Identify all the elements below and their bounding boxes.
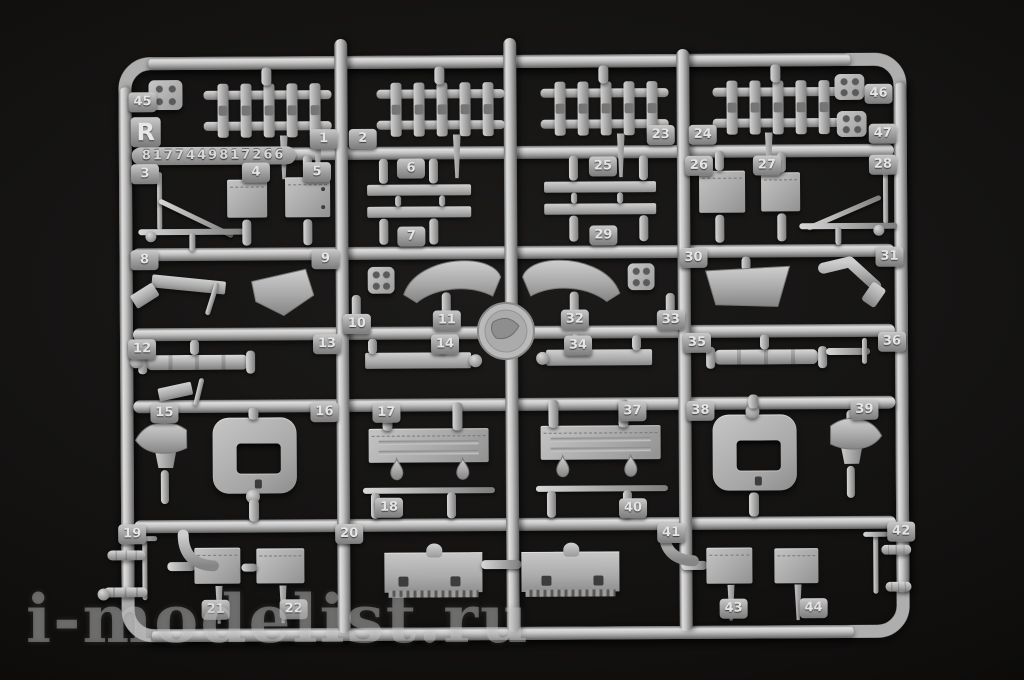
part-number-tag-36: 36 [878, 332, 906, 352]
part-number-tag-42: 42 [887, 522, 915, 542]
part-number-tag-26: 26 [685, 156, 713, 176]
part-number-tag-43: 43 [720, 599, 748, 619]
part-number-tag-35: 35 [683, 333, 711, 353]
part-number-tag-37: 37 [618, 401, 646, 421]
part-number-tag-1: 1 [310, 129, 338, 149]
part-number-tag-38: 38 [686, 401, 714, 421]
sprue-runner: R 8177449817266 454647122324345625262728… [0, 0, 1024, 680]
part-number-tag-40: 40 [619, 498, 647, 518]
part-number-tag-4: 4 [242, 162, 270, 182]
part-number-tag-14: 14 [431, 334, 459, 354]
part-number-tag-27: 27 [753, 155, 781, 175]
part-number-tag-2: 2 [349, 129, 377, 149]
part-number-tag-11: 11 [433, 310, 461, 330]
part-number-tag-8: 8 [130, 250, 158, 270]
photo-background: R 8177449817266 454647122324345625262728… [0, 0, 1024, 680]
part-number-tag-3: 3 [131, 164, 159, 184]
part-number-tag-5: 5 [303, 162, 331, 182]
watermark-text: i-modelist.ru [26, 580, 666, 658]
part-number-tag-33: 33 [657, 310, 685, 330]
part-number-tag-41: 41 [657, 523, 685, 543]
part-number-tag-45: 45 [128, 92, 156, 112]
part-number-tag-10: 10 [343, 314, 371, 334]
part-number-tag-15: 15 [150, 403, 178, 423]
part-number-tag-19: 19 [118, 524, 146, 544]
part-number-tag-29: 29 [589, 225, 617, 245]
part-number-tag-30: 30 [679, 248, 707, 268]
part-number-tag-12: 12 [128, 339, 156, 359]
part-number-tag-9: 9 [311, 249, 339, 269]
part-number-tag-28: 28 [869, 155, 897, 175]
part-number-tag-17: 17 [372, 403, 400, 423]
part-number-tag-7: 7 [397, 227, 425, 247]
part-number-tag-32: 32 [561, 310, 589, 330]
part-number-tag-34: 34 [564, 336, 592, 356]
part-number-tag-44: 44 [800, 598, 828, 618]
part-number-tag-16: 16 [310, 402, 338, 422]
part-number-tag-20: 20 [335, 524, 363, 544]
part-number-tags: 4546471223243456252627287298930311011323… [0, 0, 1024, 680]
part-number-tag-25: 25 [589, 156, 617, 176]
part-number-tag-18: 18 [375, 498, 403, 518]
part-number-tag-46: 46 [864, 84, 892, 104]
part-number-tag-23: 23 [647, 125, 675, 145]
part-number-tag-6: 6 [397, 159, 425, 179]
part-number-tag-31: 31 [875, 247, 903, 267]
part-number-tag-39: 39 [850, 400, 878, 420]
part-number-tag-24: 24 [689, 125, 717, 145]
part-number-tag-47: 47 [869, 124, 897, 144]
part-number-tag-13: 13 [313, 334, 341, 354]
